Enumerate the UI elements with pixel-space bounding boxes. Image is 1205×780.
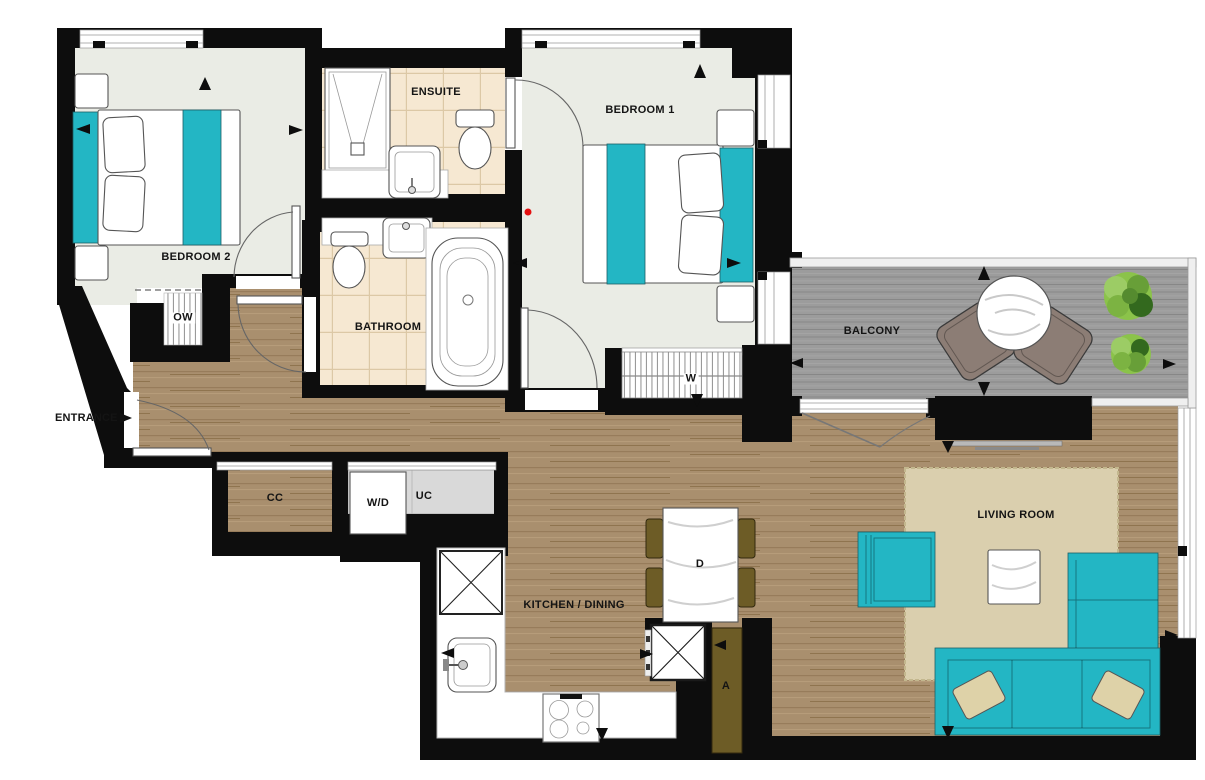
bedroom1-door-leaf (521, 308, 528, 388)
bed2-side-table (75, 74, 108, 108)
bathtub (426, 228, 508, 390)
label-dining-table: D (696, 558, 704, 570)
bed1-runner (607, 144, 645, 284)
label-balcony: BALCONY (844, 325, 901, 337)
entrance-door-leaf (133, 448, 211, 456)
shower (325, 68, 390, 172)
red-dot-marker (525, 209, 532, 216)
hob (543, 694, 599, 742)
plant (1104, 272, 1153, 320)
kitchen-sink (443, 638, 496, 692)
bed1-pillow (678, 215, 724, 276)
coffee-table (988, 550, 1040, 604)
entrance-arrow-icon (120, 413, 132, 423)
label-wardrobe: W (684, 374, 699, 385)
bed1-side-table (717, 286, 754, 322)
label-open-wardrobe: OW (171, 313, 195, 324)
bed2-pillow (103, 175, 146, 232)
bedroom1-doorway (525, 390, 598, 410)
ensuite-door-leaf (506, 78, 515, 148)
window-bedroom2-top (80, 30, 203, 48)
bed2-side-table (75, 246, 108, 280)
bathroom-sink (383, 218, 430, 258)
kitchen-appliance-tall (440, 551, 502, 614)
hall-floor-west (133, 362, 212, 452)
dining-chair (738, 568, 755, 607)
label-utility-cupboard: UC (416, 490, 433, 502)
floorplan-drawing (0, 0, 1205, 780)
label-bedroom2: BEDROOM 2 (161, 251, 230, 263)
tv-wall (935, 396, 1092, 440)
bedroom2-doorway (236, 276, 300, 289)
ensuite-toilet (456, 110, 494, 169)
balcony-table (977, 276, 1051, 350)
label-coats-cupboard: CC (267, 492, 284, 504)
plant (1111, 334, 1151, 374)
label-kitchen-dining: KITCHEN / DINING (523, 599, 624, 611)
cc-sliding-track (217, 462, 332, 470)
bedroom2-door-leaf (292, 206, 300, 278)
bed2-pillow (103, 116, 146, 173)
dining-chair (646, 568, 663, 607)
label-ensuite: ENSUITE (411, 86, 461, 98)
tv-stand (975, 447, 1039, 450)
kitchen-appliance-oven (645, 625, 705, 680)
bathroom-door-leaf (237, 296, 302, 304)
wardrobe (622, 352, 742, 398)
floorplan-page: BEDROOM 2 ENSUITE BEDROOM 1 BATHROOM BAL… (0, 0, 1205, 780)
label-washer-dryer: W/D (367, 497, 389, 509)
shower-drain (351, 143, 364, 155)
bathroom-doorway (304, 297, 316, 372)
label-bathroom: BATHROOM (355, 321, 421, 333)
label-bedroom1: BEDROOM 1 (605, 104, 674, 116)
window-bedroom1-right-upper (758, 75, 790, 148)
bed1-pillow (678, 153, 724, 214)
window-living-right (1178, 408, 1196, 638)
dining-chair (738, 519, 755, 558)
label-living-room: LIVING ROOM (977, 509, 1054, 521)
entrance-label-text: ENTRANCE (55, 412, 118, 424)
label-airing-cupboard: A (722, 680, 730, 692)
tv (952, 441, 1062, 446)
bed2-runner (183, 110, 221, 245)
armchair (858, 532, 935, 607)
window-bedroom1-top (522, 30, 700, 48)
entrance-label: ENTRANCE (55, 412, 132, 424)
utility-sliding-track (348, 462, 496, 470)
bathroom-toilet (331, 232, 368, 288)
window-bedroom1-right-lower (758, 272, 790, 344)
ensuite-sink (389, 146, 440, 198)
bed1-side-table (717, 110, 754, 146)
dining-chair (646, 519, 663, 558)
